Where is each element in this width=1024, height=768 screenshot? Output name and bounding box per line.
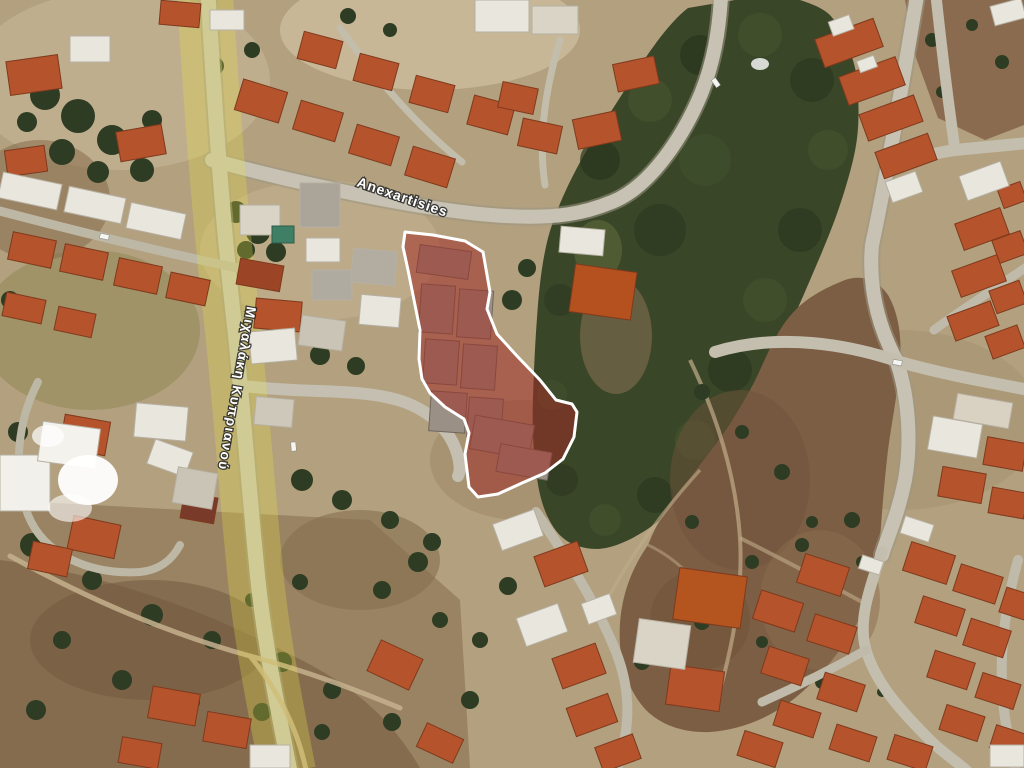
satellite-map-canvas[interactable]: Anexartisies Μιχαλάκη Κυπριανού (0, 0, 1024, 768)
green-roof-building (272, 226, 294, 243)
satellite-map: Anexartisies Μιχαλάκη Κυπριανού (0, 0, 1024, 768)
